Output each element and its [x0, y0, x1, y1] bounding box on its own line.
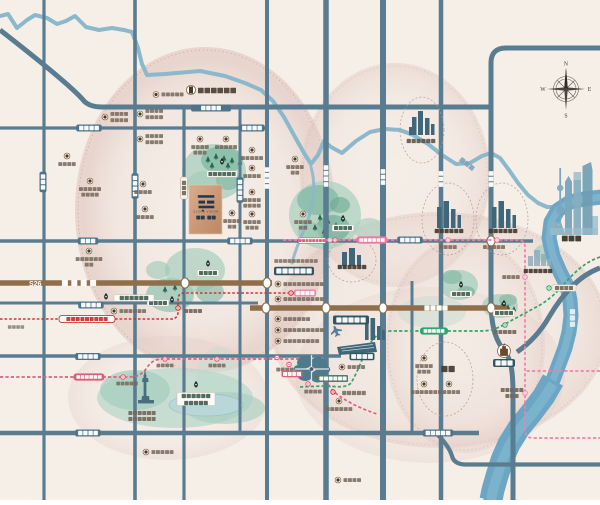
svg-text:S26: S26: [29, 281, 42, 288]
svg-text:S: S: [564, 114, 567, 120]
svg-text:W: W: [540, 87, 546, 93]
svg-text:E: E: [588, 87, 592, 93]
svg-text:CLOUD VISION: CLOUD VISION: [193, 210, 218, 214]
